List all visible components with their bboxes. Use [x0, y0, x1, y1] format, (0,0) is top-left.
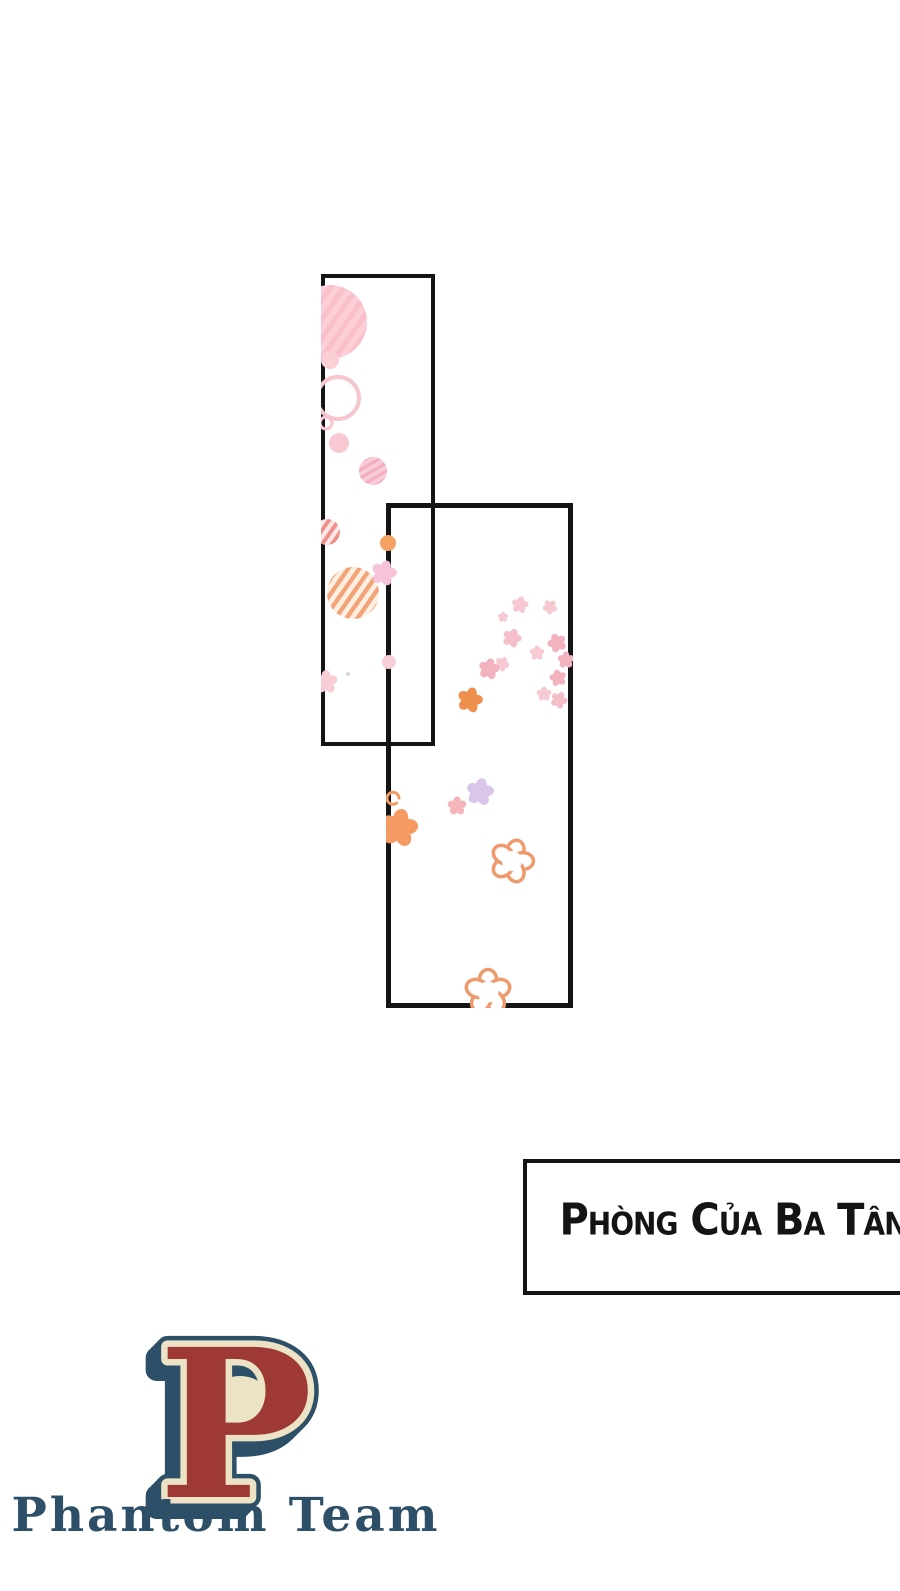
panel-2-decorations [375, 595, 575, 1015]
flower-icon [499, 625, 525, 651]
flower-icon [463, 776, 497, 809]
flower-outline-icon [483, 834, 540, 890]
panel-2-border [389, 506, 571, 1006]
striped-circle [327, 567, 379, 619]
caption-box: Phòng của ba Tân [523, 1159, 900, 1295]
dot [346, 672, 350, 676]
circle-blob [380, 535, 396, 551]
team-name: Phantom Team [10, 1488, 442, 1543]
comic-page: Phòng của ba Tân PPPPPP Phantom Team [0, 0, 900, 1591]
striped-circle [359, 457, 387, 485]
circle-blob [329, 433, 349, 453]
flower-icon [447, 796, 468, 816]
flower-icon [509, 595, 530, 615]
panel-1-decorations [293, 285, 401, 694]
flower-icon [539, 596, 561, 618]
caption-text: Phòng của ba Tân [559, 1195, 900, 1246]
flower-icon [529, 646, 545, 661]
circle-blob [382, 655, 396, 669]
flower-icon [536, 687, 552, 702]
flower-icon [375, 805, 423, 851]
flower-icon [546, 666, 570, 691]
striped-circle [314, 519, 340, 545]
flower-icon [497, 612, 508, 623]
circle-blob [321, 351, 339, 369]
striped-circle [293, 285, 367, 359]
flower-icon [453, 684, 486, 716]
flower-icon [313, 670, 338, 694]
flower-outline-icon [464, 970, 512, 1016]
